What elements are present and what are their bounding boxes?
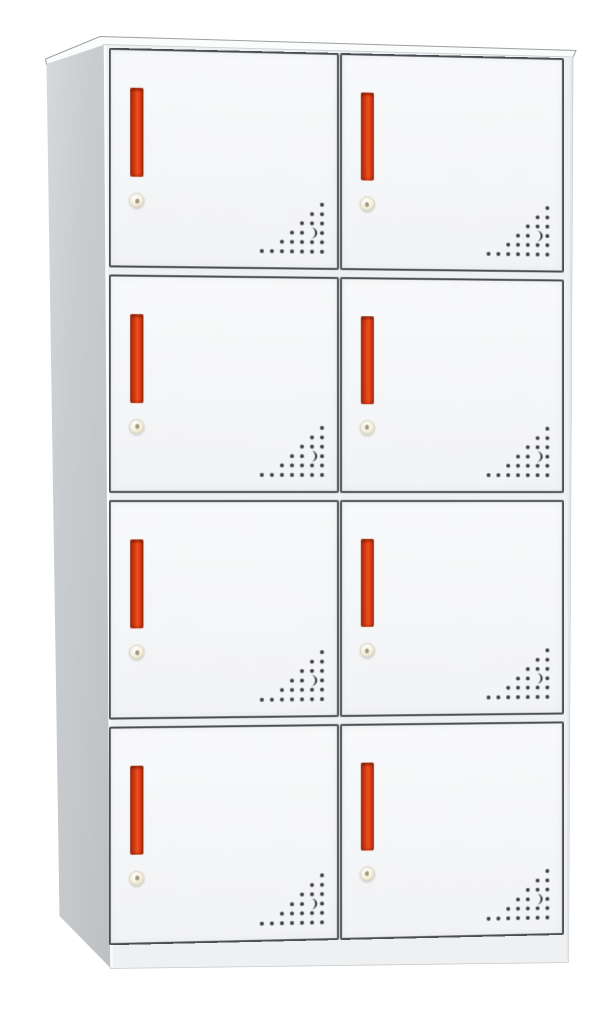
vent-dot (320, 202, 324, 206)
vent-dot (310, 221, 314, 225)
vent-dot (320, 911, 324, 915)
locker-door (109, 500, 339, 719)
vent-dot (545, 648, 549, 652)
vent-dot (320, 454, 324, 458)
vent-dot (496, 251, 500, 255)
vent-dot (516, 252, 520, 256)
vent-holes-icon (259, 647, 325, 704)
vent-dot (496, 695, 500, 699)
vent-dot (545, 915, 549, 919)
vent-crescent-slot (538, 451, 543, 462)
vent-dot (289, 921, 293, 925)
vent-dot (545, 657, 549, 661)
door-handle (360, 762, 373, 850)
vent-dot (299, 249, 303, 253)
vent-dot (279, 697, 283, 701)
vent-dot (526, 233, 530, 237)
vent-dot (526, 455, 530, 459)
vent-dot (536, 243, 540, 247)
vent-dot (526, 252, 530, 256)
vent-dot (310, 240, 314, 244)
vent-crescent-slot (538, 894, 543, 905)
vent-dot (545, 455, 549, 459)
vent-dot (526, 243, 530, 247)
vent-dot (320, 249, 324, 253)
vent-dot (536, 215, 540, 219)
vent-dot (526, 464, 530, 468)
vent-dot (279, 249, 283, 253)
vent-dot (526, 916, 530, 920)
vent-dot (269, 921, 273, 925)
locker-door (109, 724, 339, 946)
vent-dot (545, 694, 549, 698)
vent-dot (310, 435, 314, 439)
vent-dot (310, 883, 314, 887)
vent-dot (299, 473, 303, 477)
vent-dot (320, 678, 324, 682)
vent-dot (289, 230, 293, 234)
vent-dot (536, 888, 540, 892)
vent-dot (320, 659, 324, 663)
vent-dot (506, 473, 510, 477)
keyhole-lock (129, 870, 144, 885)
vent-dot (536, 657, 540, 661)
vent-dot (320, 230, 324, 234)
vent-dot (320, 920, 324, 924)
vent-dot (259, 473, 263, 477)
vent-dot (506, 916, 510, 920)
vent-dot (259, 922, 263, 926)
vent-dot (496, 917, 500, 921)
vent-dot (487, 695, 491, 699)
vent-dot (545, 869, 549, 873)
vent-holes-icon (487, 645, 552, 701)
vent-dot (310, 687, 314, 691)
vent-dot (516, 464, 520, 468)
locker-door (109, 274, 339, 493)
vent-dot (299, 697, 303, 701)
vent-dot (279, 921, 283, 925)
vent-dot (536, 436, 540, 440)
vent-dot (506, 252, 510, 256)
vent-dot (289, 688, 293, 692)
vent-dot (506, 695, 510, 699)
vent-dot (526, 888, 530, 892)
vent-dot (299, 669, 303, 673)
door-handle (130, 539, 143, 628)
vent-dot (545, 888, 549, 892)
vent-dot (289, 239, 293, 243)
vent-dot (310, 669, 314, 673)
vent-dot (320, 464, 324, 468)
locker-door (339, 277, 563, 494)
vent-dot (536, 473, 540, 477)
vent-dot (299, 678, 303, 682)
vent-dot (487, 251, 491, 255)
vent-dot (516, 916, 520, 920)
vent-dot (506, 242, 510, 246)
vent-dot (516, 685, 520, 689)
cabinet-side-panel (47, 45, 111, 968)
vent-dot (320, 873, 324, 877)
vent-dot (516, 907, 520, 911)
vent-dot (299, 902, 303, 906)
vent-dot (487, 473, 491, 477)
vent-dot (545, 906, 549, 910)
vent-dot (259, 697, 263, 701)
keyhole-lock (359, 196, 374, 211)
vent-dot (310, 445, 314, 449)
vent-dot (526, 445, 530, 449)
door-grid (109, 48, 564, 945)
vent-dot (526, 695, 530, 699)
vent-dot (526, 667, 530, 671)
vent-dot (516, 695, 520, 699)
vent-dot (299, 221, 303, 225)
vent-dot (279, 473, 283, 477)
vent-dot (526, 897, 530, 901)
vent-holes-icon (259, 423, 325, 479)
locker-door (339, 721, 563, 940)
vent-dot (536, 445, 540, 449)
vent-dot (310, 249, 314, 253)
door-handle (130, 765, 143, 854)
vent-dot (545, 243, 549, 247)
vent-dot (320, 221, 324, 225)
vent-dot (496, 473, 500, 477)
vent-dot (536, 694, 540, 698)
vent-dot (545, 206, 549, 210)
vent-dot (545, 445, 549, 449)
vent-holes-icon (487, 866, 552, 923)
vent-dot (536, 252, 540, 256)
keyhole-lock (359, 643, 374, 658)
vent-dot (545, 464, 549, 468)
vent-dot (279, 464, 283, 468)
vent-dot (536, 667, 540, 671)
vent-dot (320, 435, 324, 439)
vent-dot (506, 907, 510, 911)
locker-door (339, 53, 563, 272)
vent-dot (289, 473, 293, 477)
vent-dot (536, 916, 540, 920)
keyhole-lock (359, 420, 374, 435)
keyhole-lock (359, 866, 374, 881)
vent-dot (536, 224, 540, 228)
vent-dot (320, 883, 324, 887)
vent-dot (279, 912, 283, 916)
vent-dot (320, 445, 324, 449)
vent-crescent-slot (538, 230, 543, 241)
vent-holes-icon (259, 198, 325, 255)
vent-dot (545, 233, 549, 237)
vent-dot (320, 650, 324, 654)
vent-dot (320, 892, 324, 896)
vent-dot (310, 464, 314, 468)
vent-dot (279, 239, 283, 243)
vent-dot (506, 685, 510, 689)
vent-dot (526, 224, 530, 228)
vent-dot (526, 473, 530, 477)
vent-dot (269, 473, 273, 477)
vent-dot (320, 668, 324, 672)
vent-dot (299, 921, 303, 925)
vent-crescent-slot (312, 227, 317, 238)
vent-dot (516, 233, 520, 237)
vent-dot (289, 678, 293, 682)
vent-dot (289, 464, 293, 468)
vent-dot (516, 897, 520, 901)
vent-dot (516, 455, 520, 459)
vent-dot (536, 685, 540, 689)
vent-dot (536, 906, 540, 910)
door-handle (130, 88, 143, 177)
vent-dot (289, 454, 293, 458)
locker-door (109, 48, 339, 270)
vent-dot (320, 212, 324, 216)
vent-dot (299, 687, 303, 691)
vent-dot (516, 676, 520, 680)
vent-dot (289, 912, 293, 916)
vent-crescent-slot (312, 898, 317, 909)
vent-dot (310, 697, 314, 701)
vent-dot (545, 224, 549, 228)
vent-crescent-slot (312, 674, 317, 685)
vent-dot (310, 921, 314, 925)
vent-dot (536, 464, 540, 468)
vent-dot (545, 685, 549, 689)
vent-dot (289, 697, 293, 701)
vent-dot (320, 697, 324, 701)
vent-dot (299, 893, 303, 897)
vent-dot (289, 249, 293, 253)
keyhole-lock (129, 419, 144, 434)
vent-dot (269, 249, 273, 253)
vent-dot (516, 242, 520, 246)
vent-dot (299, 240, 303, 244)
vent-dot (279, 688, 283, 692)
vent-dot (310, 892, 314, 896)
vent-dot (487, 917, 491, 921)
vent-dot (320, 687, 324, 691)
vent-dot (299, 464, 303, 468)
keyhole-lock (129, 193, 144, 208)
vent-dot (320, 240, 324, 244)
product-image (0, 0, 605, 1009)
vent-dot (526, 907, 530, 911)
vent-dot (320, 902, 324, 906)
vent-holes-icon (487, 424, 552, 480)
vent-dot (545, 436, 549, 440)
vent-dot (299, 445, 303, 449)
vent-dot (545, 252, 549, 256)
vent-dot (545, 215, 549, 219)
door-handle (360, 92, 373, 180)
vent-crescent-slot (312, 451, 317, 462)
vent-dot (299, 230, 303, 234)
vent-dot (299, 911, 303, 915)
vent-holes-icon (487, 202, 552, 258)
vent-holes-icon (259, 870, 325, 927)
vent-dot (310, 911, 314, 915)
vent-dot (545, 427, 549, 431)
vent-dot (526, 676, 530, 680)
vent-dot (310, 211, 314, 215)
vent-dot (310, 659, 314, 663)
door-handle (360, 316, 373, 404)
vent-dot (545, 473, 549, 477)
locker-door (339, 500, 563, 717)
vent-dot (320, 426, 324, 430)
vent-dot (536, 878, 540, 882)
vent-dot (310, 473, 314, 477)
door-handle (360, 539, 373, 627)
vent-dot (259, 248, 263, 252)
vent-dot (320, 473, 324, 477)
vent-dot (289, 902, 293, 906)
vent-dot (545, 897, 549, 901)
vent-dot (526, 685, 530, 689)
vent-dot (299, 454, 303, 458)
vent-dot (506, 464, 510, 468)
vent-dot (516, 473, 520, 477)
vent-dot (545, 878, 549, 882)
vent-crescent-slot (538, 672, 543, 683)
vent-dot (269, 697, 273, 701)
vent-dot (545, 676, 549, 680)
keyhole-lock (129, 644, 144, 659)
door-handle (130, 314, 143, 403)
vent-dot (545, 666, 549, 670)
